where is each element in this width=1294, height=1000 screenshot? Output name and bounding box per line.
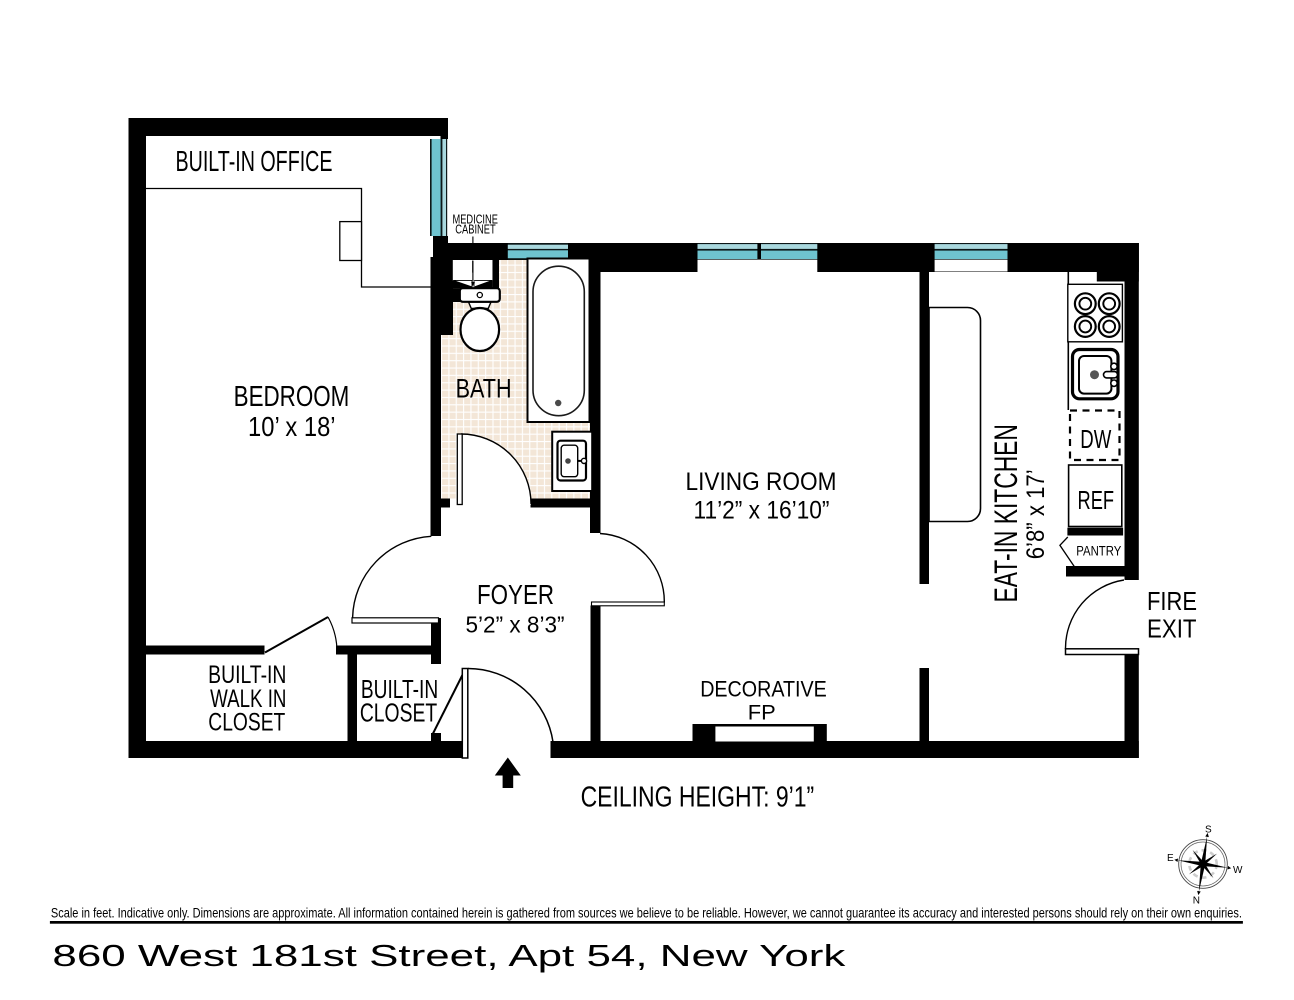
svg-text:DECORATIVE: DECORATIVE — [700, 677, 827, 702]
svg-text:CABINET: CABINET — [455, 223, 496, 237]
svg-text:E: E — [1167, 853, 1174, 864]
svg-text:860 West 181st Street, Apt 54,: 860 West 181st Street, Apt 54, New York — [52, 938, 846, 973]
svg-text:Scale in feet. Indicative only: Scale in feet. Indicative only. Dimensio… — [51, 906, 1242, 921]
svg-text:11’2” x 16’10”: 11’2” x 16’10” — [694, 497, 830, 525]
svg-text:DW: DW — [1080, 424, 1111, 454]
svg-text:FIRE: FIRE — [1147, 586, 1197, 616]
svg-text:FOYER: FOYER — [477, 579, 554, 610]
svg-text:W: W — [1233, 865, 1243, 876]
svg-text:BATH: BATH — [456, 372, 512, 403]
svg-text:FP: FP — [748, 701, 776, 724]
svg-text:BEDROOM: BEDROOM — [234, 381, 350, 413]
svg-text:EAT-IN KITCHEN: EAT-IN KITCHEN — [988, 424, 1024, 602]
svg-text:CLOSET: CLOSET — [360, 697, 437, 727]
svg-text:LIVING ROOM: LIVING ROOM — [686, 469, 837, 496]
svg-text:S: S — [1205, 825, 1212, 836]
svg-text:EXIT: EXIT — [1147, 614, 1197, 644]
svg-text:CLOSET: CLOSET — [208, 708, 285, 736]
svg-text:5’2” x 8’3”: 5’2” x 8’3” — [466, 611, 565, 637]
svg-text:REF: REF — [1078, 485, 1115, 515]
svg-text:BUILT-IN OFFICE: BUILT-IN OFFICE — [176, 145, 333, 177]
svg-text:CEILING HEIGHT: 9’1”: CEILING HEIGHT: 9’1” — [581, 780, 815, 812]
svg-text:6’8” x 17’: 6’8” x 17’ — [1022, 469, 1050, 559]
svg-text:PANTRY: PANTRY — [1076, 544, 1121, 559]
svg-text:10’ x 18’: 10’ x 18’ — [248, 411, 336, 442]
